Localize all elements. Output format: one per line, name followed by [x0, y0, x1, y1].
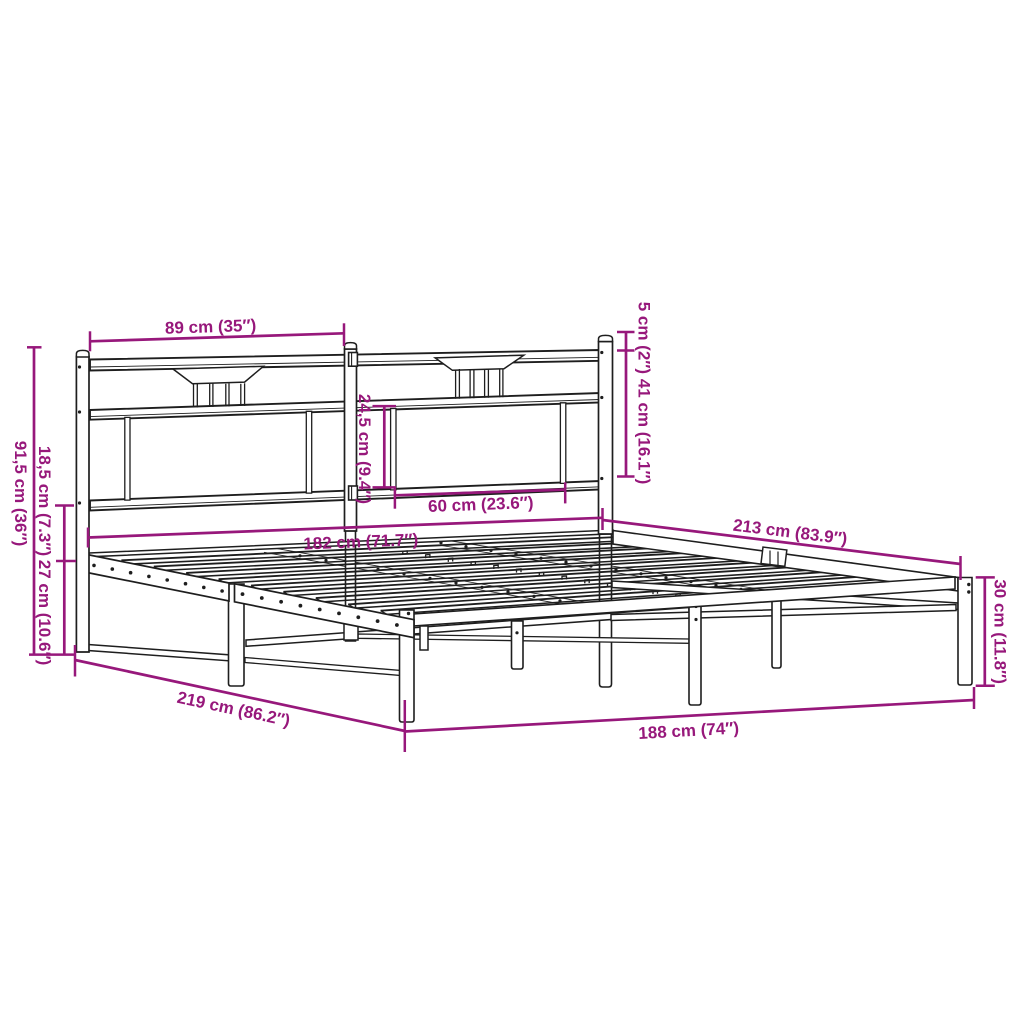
svg-text:18,5 cm (7.3″): 18,5 cm (7.3″) — [35, 446, 54, 556]
svg-text:60 cm (23.6″): 60 cm (23.6″) — [428, 493, 534, 516]
svg-text:24,5 cm (9.4″): 24,5 cm (9.4″) — [355, 394, 374, 504]
svg-text:5 cm (2″) 41 cm (16.1″): 5 cm (2″) 41 cm (16.1″) — [635, 302, 654, 485]
svg-text:30 cm (11.8″): 30 cm (11.8″) — [991, 579, 1010, 684]
svg-text:89 cm (35″): 89 cm (35″) — [165, 316, 257, 338]
svg-text:27 cm (10.6″): 27 cm (10.6″) — [35, 560, 54, 665]
svg-text:91,5 cm (36″): 91,5 cm (36″) — [11, 441, 30, 546]
